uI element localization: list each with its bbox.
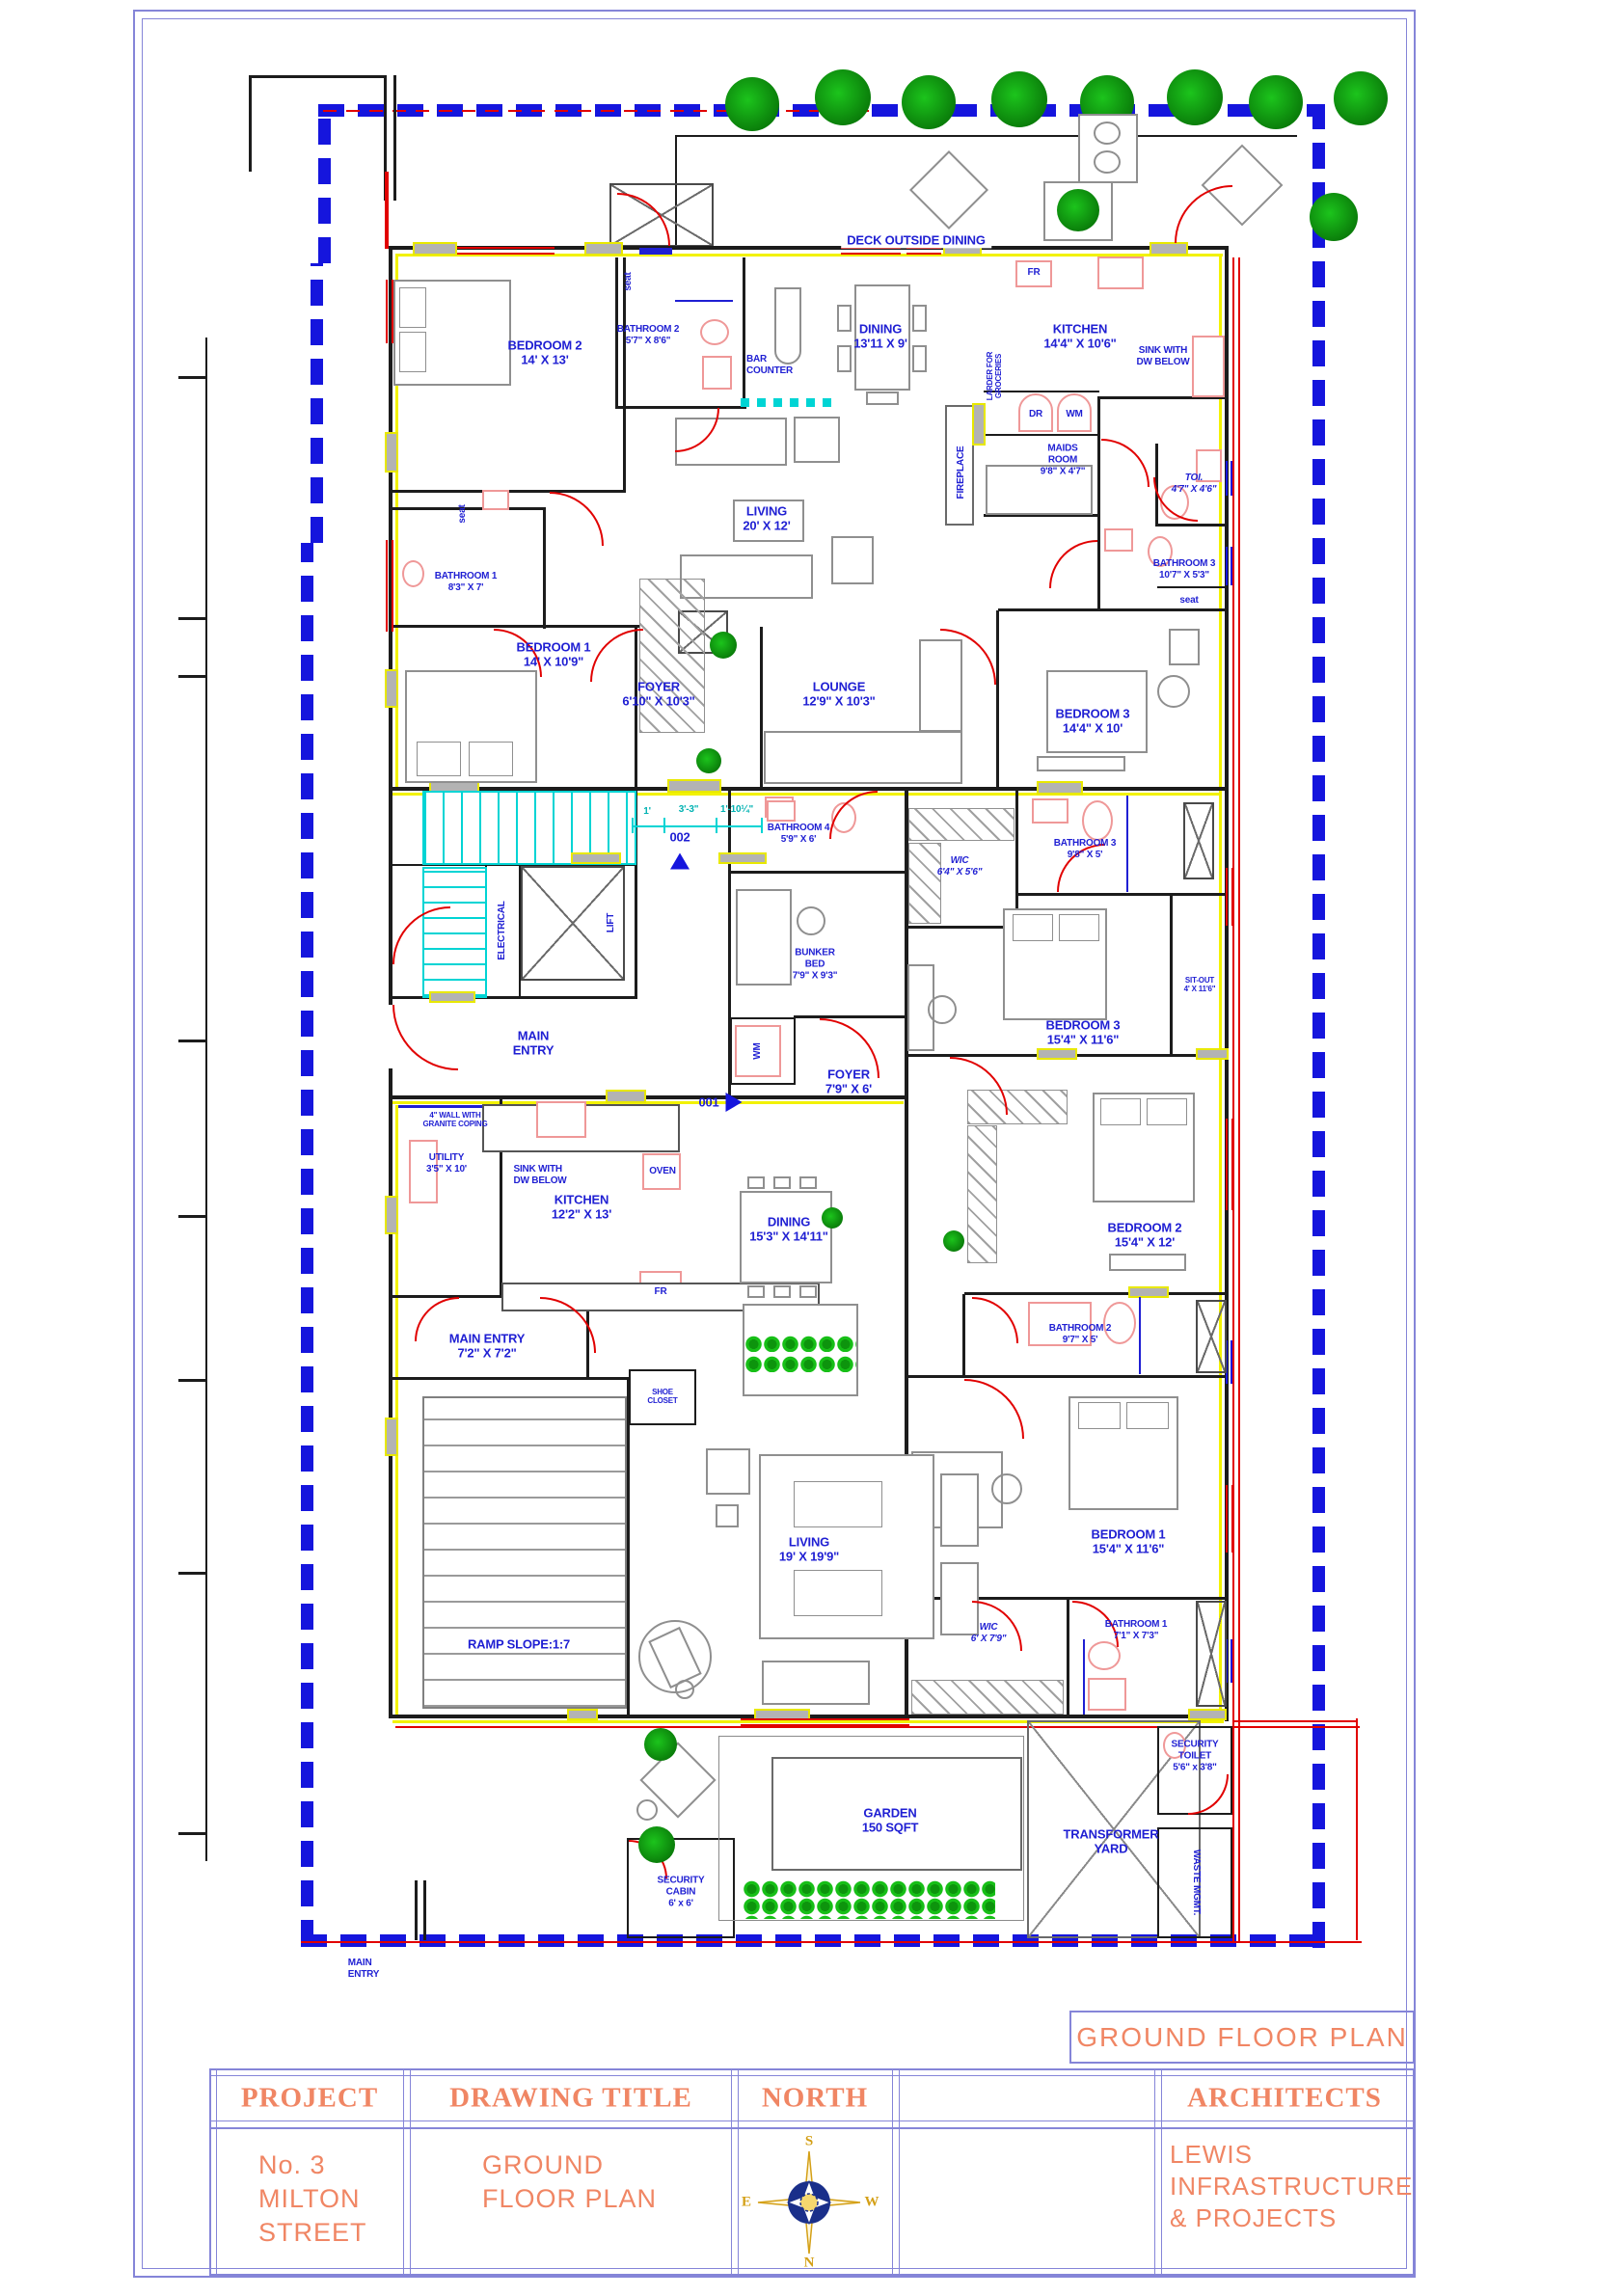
label-fr-b: FR: [655, 1286, 667, 1298]
label-sink-a: SINK WITH DW BELOW: [1136, 345, 1189, 368]
door-002-marker-icon: [670, 853, 690, 870]
room-label-kitchen-a: KITCHEN 14'4" X 10'6": [1043, 322, 1116, 352]
room-label-bathroom3-b: BATHROOM 3 9'8" X 5': [1054, 838, 1116, 861]
compass-w: W: [865, 2195, 879, 2211]
wardrobe-bedroom1a: [639, 579, 705, 733]
bed-bedroom2-b: [1093, 1093, 1195, 1202]
header-project: PROJECT: [241, 2085, 378, 2113]
label-security-toilet: SECURITY TOILET 5'6" x 3'8": [1172, 1739, 1219, 1772]
room-label-utility: UTILITY 3'5" X 10': [426, 1152, 467, 1175]
room-label-bedroom2-a: BEDROOM 2 14' X 13': [508, 338, 582, 368]
bed-bedroom1-b: [1068, 1396, 1178, 1510]
door-001-marker-icon: [726, 1093, 743, 1112]
room-label-foyer-b: FOYER 7'9" X 6': [825, 1067, 872, 1097]
header-north: NORTH: [762, 2085, 868, 2113]
room-label-wic-b3: WIC 6'4" X 5'6": [937, 855, 983, 878]
label-main-entry-a: MAIN ENTRY: [513, 1029, 555, 1059]
dim-2: 3'-3": [679, 804, 699, 816]
label-main-entry-site: MAIN ENTRY: [348, 1958, 380, 1981]
label-waste-mgmt: WASTE MGMT.: [1190, 1850, 1202, 1915]
room-label-bedroom1-a: BEDROOM 1 14' X 10'9": [517, 640, 591, 670]
room-label-bathroom2-b: BATHROOM 2 9'7" X 5': [1049, 1323, 1111, 1346]
room-label-bathroom3-a: BATHROOM 3 10'7" X 5'3": [1153, 558, 1215, 581]
room-label-bar-counter: BAR COUNTER: [746, 354, 793, 377]
label-lift: LIFT: [606, 913, 617, 932]
label-granite-coping: 4" WALL WITH GRANITE COPING: [423, 1112, 488, 1129]
room-label-kitchen-b: KITCHEN 12'2" X 13': [552, 1193, 611, 1223]
seat-label-right: seat: [1179, 595, 1198, 607]
room-label-bedroom2-b: BEDROOM 2 15'4" X 12': [1108, 1221, 1182, 1251]
floor-plan-sheet: DECK OUTSIDE DINING: [0, 0, 1623, 2296]
drawing-title-value: GROUND FLOOR PLAN: [482, 2148, 657, 2216]
label-wm-a: WM: [1066, 409, 1082, 420]
compass-n: N: [804, 2255, 815, 2272]
seat-label-top: seat: [623, 272, 635, 290]
dim-3: 1'-10¼": [720, 804, 753, 816]
lounge-sofa: [764, 731, 962, 784]
label-oven: OVEN: [649, 1166, 676, 1177]
label-larder: LARDER FOR GROCERIES: [987, 352, 1004, 400]
compass-s: S: [805, 2134, 813, 2150]
label-transformer-yard: TRANSFORMER YARD: [1064, 1827, 1159, 1857]
label-fireplace: FIREPLACE: [956, 446, 967, 500]
dim-line: [632, 825, 763, 827]
project-value: No. 3 MILTON STREET: [258, 2148, 367, 2250]
room-label-maids: MAIDS ROOM 9'8" X 4'7": [1041, 443, 1086, 476]
label-garden: GARDEN 150 SQFT: [859, 1806, 921, 1836]
compass-e: E: [742, 2195, 751, 2211]
room-label-foyer-a: FOYER 6'10" X 10'3": [622, 680, 694, 710]
room-label-living-b: LIVING 19' X 19'9": [779, 1535, 839, 1565]
label-shoe-closet: SHOE CLOSET: [647, 1389, 677, 1406]
room-label-wic-b1: WIC 6' X 7'9": [971, 1622, 1007, 1645]
room-label-bedroom1-b: BEDROOM 1 15'4" X 11'6": [1092, 1527, 1166, 1557]
door-number-001: 001: [698, 1094, 718, 1109]
room-label-main-entry-b: MAIN ENTRY 7'2" X 7'2": [449, 1332, 525, 1362]
plan-title-banner: GROUND FLOOR PLAN: [1069, 2011, 1415, 2064]
bar-counter-shape: [774, 287, 801, 365]
compass-rose: S N E W: [756, 2149, 862, 2255]
label-ramp-slope: RAMP SLOPE:1:7: [464, 1636, 574, 1651]
bed-bedroom1a: [405, 670, 537, 783]
room-label-dining-a: DINING 13'11 X 9': [853, 322, 907, 352]
ramp: [422, 1396, 627, 1709]
bunk-bed: [736, 889, 792, 986]
room-label-bedroom3-a: BEDROOM 3 14'4" X 10': [1056, 707, 1130, 737]
dim-1: 1': [643, 806, 651, 818]
bed-bedroom3-b: [1003, 908, 1107, 1020]
bed-bedroom2a: [393, 280, 511, 386]
room-label-bathroom1-b: BATHROOM 1 7'1" X 7'3": [1105, 1619, 1167, 1642]
room-label-bathroom2-a: BATHROOM 2 5'7" X 8'6": [617, 324, 679, 347]
room-label-toi: TOI. 4'7" X 4'6": [1172, 473, 1217, 496]
room-label-living-a: LIVING 20' X 12': [743, 504, 790, 534]
label-wm-core: WM: [752, 1042, 764, 1059]
architects-value: LEWIS INFRASTRUCTURE & PROJECTS: [1170, 2139, 1413, 2234]
plan-title-text: GROUND FLOOR PLAN: [1076, 2022, 1408, 2053]
room-label-sitout: SIT-OUT 4' X 11'6": [1184, 977, 1216, 994]
label-electrical: ELECTRICAL: [497, 901, 508, 959]
label-security-cabin: SECURITY CABIN 6' x 6': [658, 1875, 705, 1908]
label-dr: DR: [1029, 409, 1042, 420]
room-label-bunker-bed: BUNKER BED 7'9" X 9'3": [793, 947, 838, 981]
room-label-dining-b: DINING 15'3" X 14'11": [749, 1215, 828, 1245]
label-sink-b: SINK WITH DW BELOW: [513, 1164, 566, 1187]
header-architects: ARCHITECTS: [1187, 2085, 1382, 2113]
deck-label: DECK OUTSIDE DINING: [841, 231, 991, 248]
label-fr-a: FR: [1028, 267, 1041, 279]
room-label-bathroom1-a: BATHROOM 1 8'3" X 7': [435, 571, 497, 594]
header-drawing-title: DRAWING TITLE: [449, 2085, 692, 2113]
seat-label-left: seat: [457, 504, 469, 523]
room-label-bedroom3-b: BEDROOM 3 15'4" X 11'6": [1046, 1018, 1121, 1048]
room-label-bathroom4: BATHROOM 4 5'9" X 6': [768, 823, 829, 846]
room-label-lounge: LOUNGE 12'9" X 10'3": [802, 680, 875, 710]
door-number-002: 002: [669, 829, 690, 844]
